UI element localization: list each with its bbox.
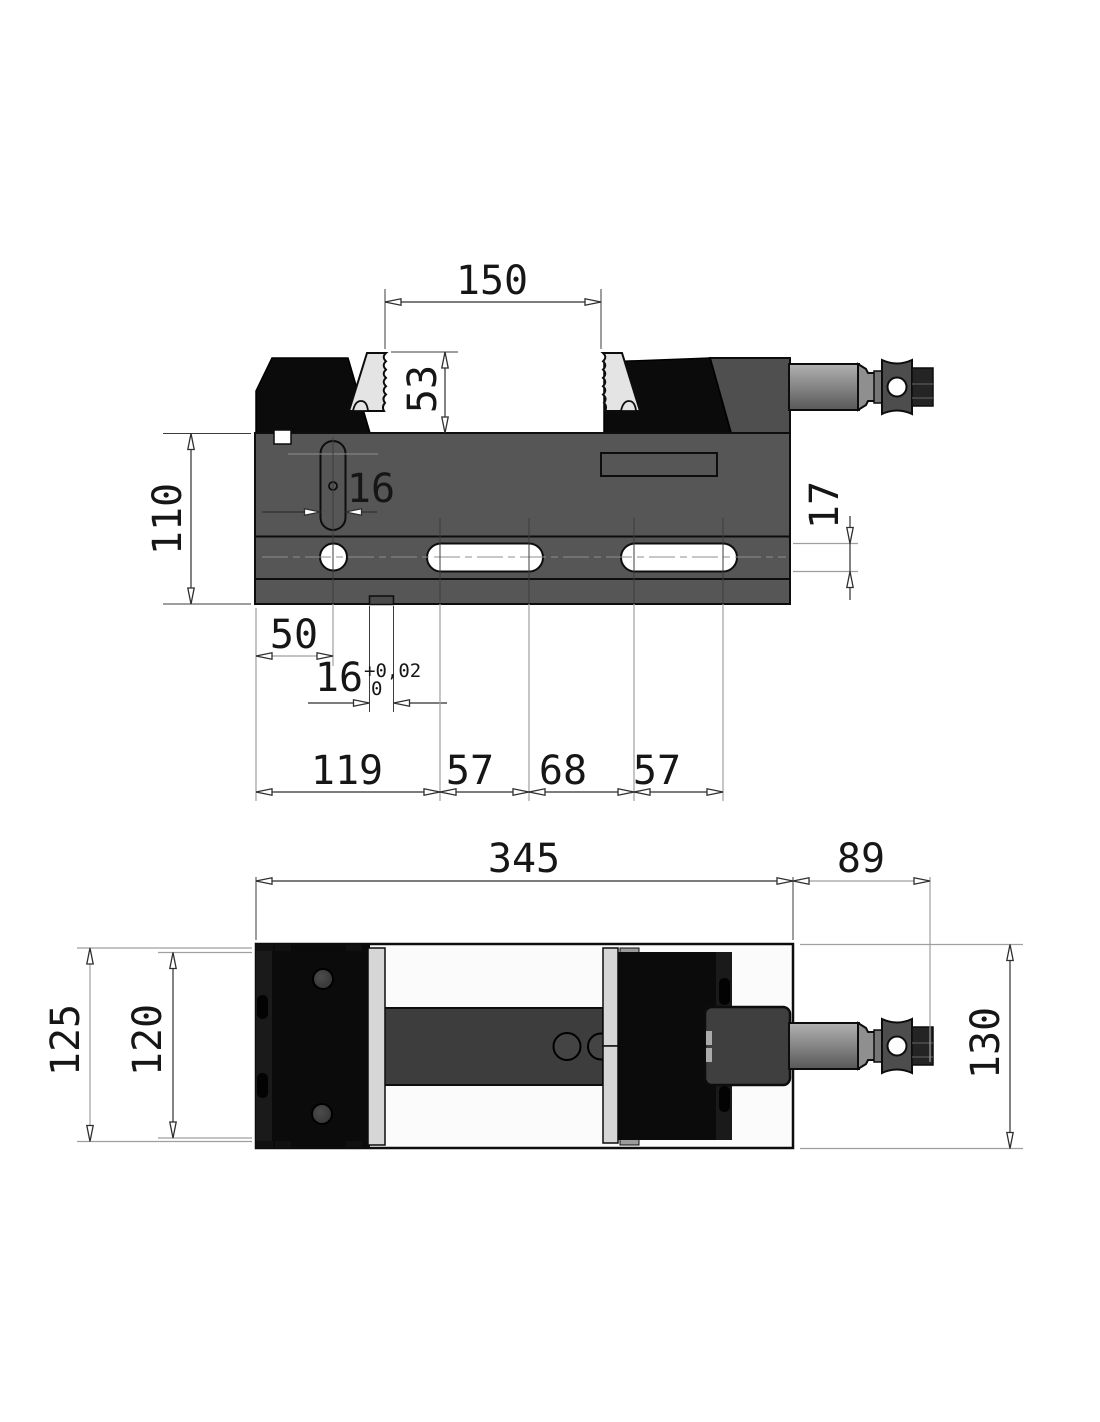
dim-jaw-height: 53 [391,352,458,433]
dim-text-345: 345 [488,836,560,882]
technical-drawing: 150 53 110 16 17 50 [0,0,1100,1422]
plan-fixed-jaw-edge [256,945,272,1147]
spindle-handle-plan [789,1019,933,1073]
clamp-tab [346,945,362,951]
dim-jaw-opening: 150 [385,258,601,349]
plan-movable-jaw-plate-lower [603,1046,618,1143]
dim-text-16-key: 16 [315,655,363,701]
spindle-handle-side [789,360,933,414]
spindle-shaft [789,1023,859,1069]
spindle-shaft [789,364,859,410]
clamp-tab [256,1141,273,1148]
label-plate [601,453,717,476]
side-hole [257,995,268,1019]
dim-body-height: 110 [145,434,251,605]
nut-housing [705,1007,790,1085]
housing-mark [706,1048,712,1062]
clamp-tab [275,944,291,951]
handle-end-cap [912,368,933,406]
dim-body-length: 345 [256,836,793,940]
dim-text-57b: 57 [633,748,681,794]
dim-key-width: 16 +0,02 0 [308,606,447,712]
handle-bar-hole [888,378,907,397]
dim-text-57a: 57 [446,748,494,794]
dim-text-120: 120 [125,1004,171,1076]
key-tenon [370,596,394,605]
plan-view [256,944,933,1148]
jaw-screw [313,969,333,989]
jaw-screw [312,1104,332,1124]
clamp-tab [256,944,273,951]
plan-movable-jaw-plate-upper [603,948,618,1046]
dim-text-89: 89 [837,836,885,882]
dim-text-119: 119 [311,748,383,794]
dim-text-50: 50 [270,612,318,658]
slide-bar-hole [554,1033,581,1060]
plan-fixed-jaw-plate [368,948,385,1145]
side-hole [257,1073,268,1098]
housing-mark [706,1031,712,1045]
dim-text-53: 53 [400,365,446,413]
side-hole [719,978,730,1005]
dim-text-150: 150 [456,258,528,304]
handle-bar-hole [888,1037,907,1056]
gib-marker [274,430,291,444]
dim-text-125: 125 [43,1004,89,1076]
side-hole [719,1086,730,1112]
drawing-canvas: 150 53 110 16 17 50 [0,0,1100,1422]
dim-text-130: 130 [963,1007,1009,1079]
dim-text-68: 68 [539,748,587,794]
dim-text-110: 110 [145,483,191,555]
dim-text-16-slot: 16 [347,466,395,512]
dim-tslot-height: 17 [793,481,858,600]
clamp-tab [346,1141,362,1147]
clamp-tab [275,1141,291,1148]
dim-jaw-plate-width: 120 [125,953,252,1139]
dim-text-17: 17 [802,481,848,529]
dim-text-key-tol-lower: 0 [371,678,382,700]
